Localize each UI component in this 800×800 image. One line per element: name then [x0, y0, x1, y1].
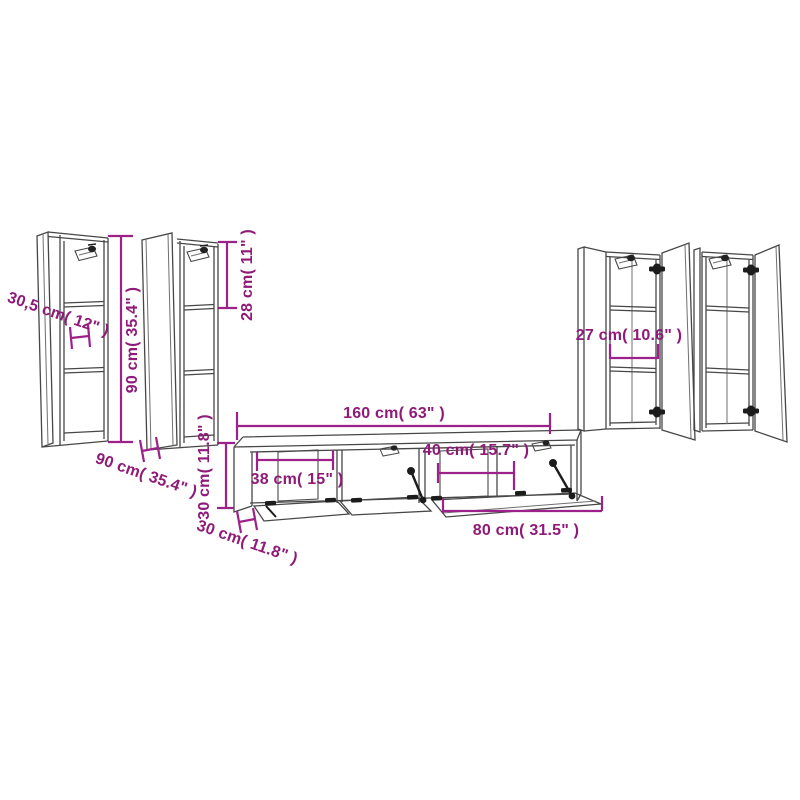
wall-cabinet-left-1	[37, 232, 108, 447]
dim-line-30cm-vertical	[217, 443, 235, 508]
dim-line-40cm	[438, 461, 514, 490]
shelf	[64, 368, 104, 374]
wall-cabinet-right-2	[694, 245, 787, 442]
dim-label-left-cabinet-height: 90 cm( 35.4" )	[124, 287, 142, 393]
product-dimension-diagram: 30,5 cm( 12" ) 90 cm( 35.4" ) 28 cm( 11"…	[0, 0, 800, 800]
wall-mount-bracket-icon	[187, 245, 209, 262]
shelf	[64, 302, 104, 308]
wall-mount-bracket-icon	[75, 244, 97, 261]
wall-mount-bracket-icon	[380, 445, 399, 456]
dim-line-38cm	[257, 450, 333, 471]
shelf	[184, 370, 214, 376]
dim-label-tv-total-width: 160 cm( 63" )	[343, 405, 445, 423]
shelf	[610, 306, 656, 312]
shelf	[610, 367, 656, 373]
dim-label-tv-unit-width: 80 cm( 31.5" )	[473, 522, 579, 540]
dim-label-tv-left-compartment: 38 cm( 15" )	[251, 471, 344, 489]
flip-door	[432, 493, 601, 517]
dim-line-28cm-vertical	[218, 242, 237, 308]
dim-label-tv-height: 30 cm( 11.8" )	[196, 414, 214, 520]
depth-tick-30cm	[237, 508, 257, 533]
furniture-line-art	[0, 0, 800, 800]
dim-line-27cm	[610, 344, 658, 359]
dim-label-top-compartment: 28 cm( 11" )	[239, 229, 257, 321]
dim-label-right-cabinet-width: 27 cm( 10.6" )	[576, 327, 682, 345]
hinge-icon	[743, 265, 759, 417]
shelf	[184, 305, 214, 311]
cabinet-door	[142, 233, 177, 450]
dim-label-tv-right-compartment: 40 cm( 15.7" )	[423, 442, 529, 460]
